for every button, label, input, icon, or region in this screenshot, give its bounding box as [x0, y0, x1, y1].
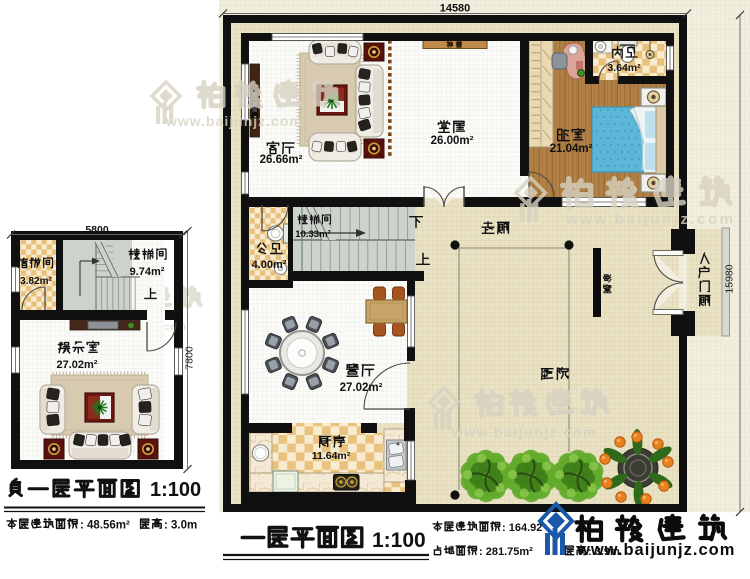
svg-text:4.00m²: 4.00m² — [252, 259, 287, 271]
svg-text:9.74m²: 9.74m² — [130, 266, 165, 278]
svg-text:27.02m²: 27.02m² — [340, 382, 383, 394]
svg-text:5800: 5800 — [85, 224, 109, 236]
svg-text:3.64m²: 3.64m² — [607, 62, 641, 74]
svg-text:www.baijunjz.com: www.baijunjz.com — [165, 113, 303, 129]
svg-text:26.66m²: 26.66m² — [260, 154, 303, 166]
svg-text:10.33m²: 10.33m² — [295, 229, 330, 240]
svg-text:7800: 7800 — [184, 346, 196, 370]
svg-text:26.00m²: 26.00m² — [431, 135, 474, 147]
svg-text:27.02m²: 27.02m² — [57, 359, 98, 371]
svg-text:: 48.56m²: : 48.56m² — [80, 520, 130, 532]
svg-text:: 164.92: : 164.92 — [502, 522, 542, 534]
svg-text:11.64m²: 11.64m² — [312, 450, 351, 462]
svg-text:: 281.75m²: : 281.75m² — [479, 546, 533, 558]
svg-text:21.04m²: 21.04m² — [550, 143, 593, 155]
svg-text:3.82m²: 3.82m² — [20, 276, 52, 287]
svg-text:14580: 14580 — [440, 3, 471, 15]
svg-text:1:100: 1:100 — [150, 479, 201, 501]
svg-text:: 3.0m: : 3.0m — [164, 520, 197, 532]
svg-text:www.baijunjz.com: www.baijunjz.com — [451, 424, 597, 440]
svg-text:www.baijunjz.com: www.baijunjz.com — [576, 541, 735, 559]
svg-text:www.baijunjz.com: www.baijunjz.com — [565, 211, 735, 228]
svg-text:15980: 15980 — [724, 264, 736, 293]
svg-text:1:100: 1:100 — [372, 529, 426, 552]
